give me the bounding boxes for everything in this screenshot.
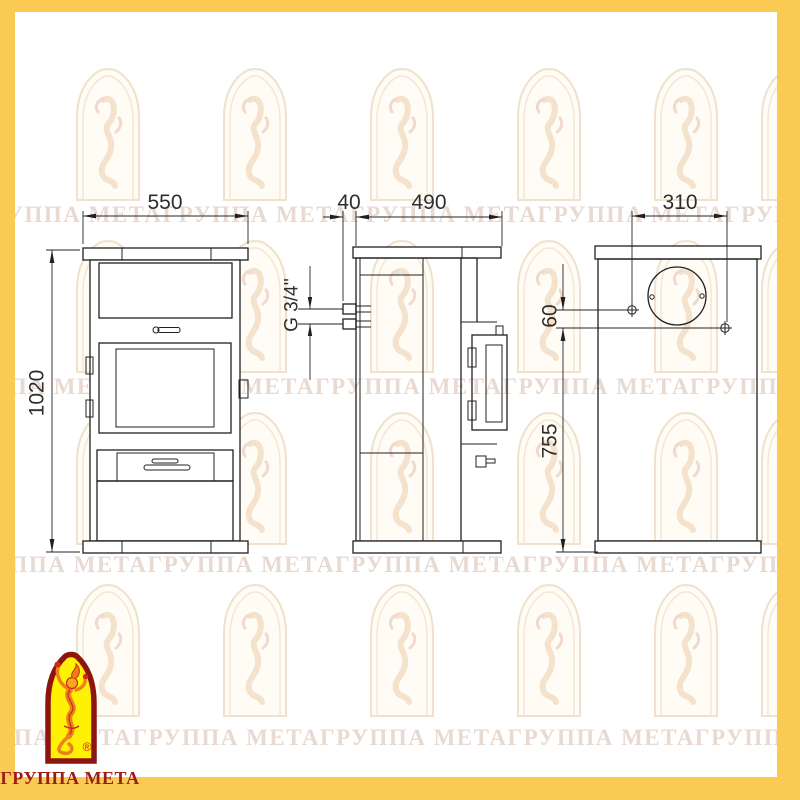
brand-logo: ® <box>48 654 94 761</box>
dim-label-rear-hole-span: 310 <box>662 191 697 214</box>
side-base <box>353 541 501 553</box>
front-base <box>83 541 248 553</box>
logo-caption: ГРУППА МЕТА <box>0 768 139 788</box>
front-view-drawing <box>83 248 248 553</box>
front-body <box>90 260 240 541</box>
frame-top <box>0 0 800 12</box>
back-base <box>595 541 761 553</box>
frame-left <box>0 0 15 800</box>
front-top-plate <box>83 248 248 260</box>
stove-technical-drawing-sheet: ГРУППА МЕТАГРУППА МЕТАГРУППА МЕТАГРУППА … <box>0 0 800 800</box>
dim-label-depth: 490 <box>411 191 446 214</box>
dim-label-rear-hole-height: 755 <box>538 423 561 458</box>
back-top-plate <box>595 246 761 259</box>
logo-registered-mark: ® <box>83 740 92 754</box>
dim-label-rear-hole-offset: 60 <box>538 304 561 327</box>
side-top-plate <box>353 247 501 258</box>
dim-label-pipe-stub-length: 40 <box>337 191 360 214</box>
dim-label-front-width: 550 <box>147 191 182 214</box>
frame-right <box>777 0 800 800</box>
watermark-text-row: ГРУППА МЕТАГРУППА МЕТАГРУППА МЕТАГРУППА … <box>0 552 800 577</box>
watermark-text-row: ГРУППА МЕТАГРУППА МЕТАГРУППА МЕТАГРУППА … <box>0 725 800 750</box>
dim-label-front-height: 1020 <box>25 370 48 417</box>
dim-label-pipe-thread: G 3/4'' <box>282 278 303 332</box>
